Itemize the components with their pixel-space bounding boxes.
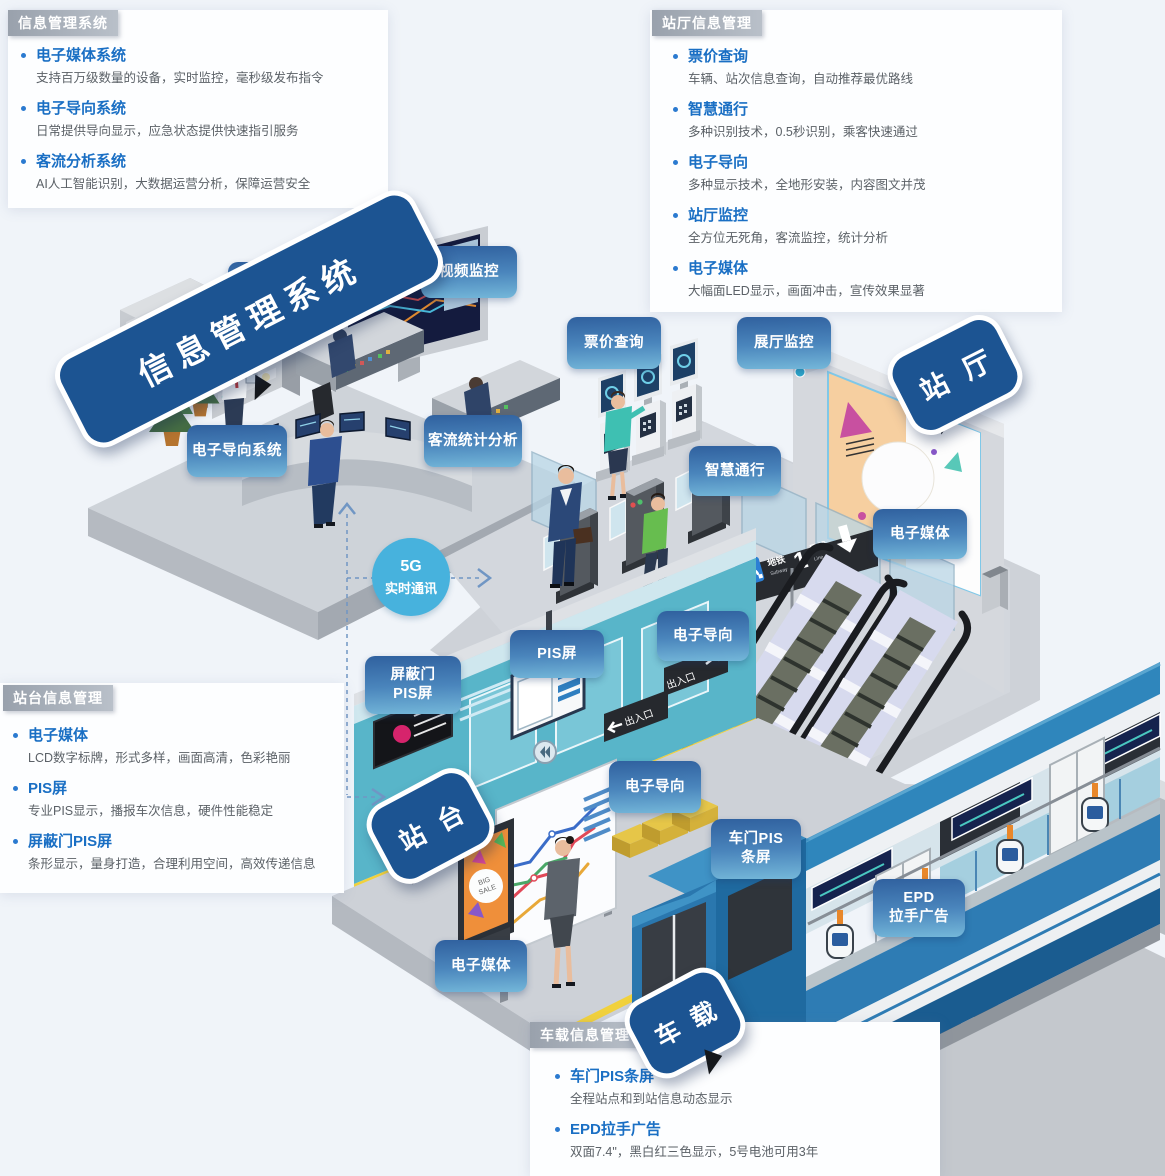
list-item: 客流分析系统 AI人工智能识别，大数据运营分析，保障运营安全 (21, 153, 382, 192)
list-item: PIS屏 专业PIS显示，播报车次信息，硬件性能稳定 (13, 780, 338, 819)
panel-info-system: 信息管理系统 电子媒体系统 支持百万级数量的设备，实时监控，毫秒级发布指令 电子… (8, 10, 388, 208)
bullet-icon (13, 839, 18, 844)
label-guide-system: 电子导向系统 (187, 425, 287, 477)
list-item: 屏蔽门PIS屏 条形显示，量身打造，合理利用空间，高效传递信息 (13, 833, 338, 872)
label-smart-pass: 智慧通行 (689, 446, 781, 496)
label-fare-query: 票价查询 (567, 317, 661, 369)
bullet-icon (13, 733, 18, 738)
list-item: 电子媒体系统 支持百万级数量的设备，实时监控，毫秒级发布指令 (21, 47, 382, 86)
label-guide-mid: 电子导向 (609, 761, 701, 813)
label-door-pis: 车门PIS条屏 (711, 819, 801, 879)
label-epd: EPD拉手广告 (873, 879, 965, 937)
bullet-icon (555, 1127, 560, 1132)
five-g-badge: 5G 实时通讯 (372, 538, 450, 616)
list-item: EPD拉手广告 双面7.4"，黑白红三色显示，5号电池可用3年 (555, 1121, 934, 1160)
bullet-icon (673, 107, 678, 112)
bullet-icon (673, 160, 678, 165)
panel-onboard-header: 车载信息管理 (530, 1022, 640, 1048)
list-item: 电子导向系统 日常提供导向显示，应急状态提供快速指引服务 (21, 100, 382, 139)
bullet-icon (21, 53, 26, 58)
bullet-icon (673, 266, 678, 271)
panel-platform-header: 站台信息管理 (3, 685, 113, 711)
panel-info-system-header: 信息管理系统 (8, 10, 118, 36)
list-item: 电子媒体 LCD数字标牌，形式多样，画面高清，色彩艳丽 (13, 727, 338, 766)
bullet-icon (673, 213, 678, 218)
label-psd-pis: 屏蔽门PIS屏 (365, 656, 461, 714)
list-item: 电子导向 多种显示技术，全地形安装，内容图文并茂 (673, 154, 1056, 193)
label-hall-monitor: 展厅监控 (737, 317, 831, 369)
list-item: 智慧通行 多种识别技术，0.5秒识别，乘客快速通过 (673, 101, 1056, 140)
list-item: 票价查询 车辆、站次信息查询，自动推荐最优路线 (673, 48, 1056, 87)
list-item: 车门PIS条屏 全程站点和到站信息动态显示 (555, 1068, 934, 1107)
panel-onboard: 车载信息管理 车门PIS条屏 全程站点和到站信息动态显示 EPD拉手广告 双面7… (530, 1022, 940, 1176)
label-guide-top: 电子导向 (657, 611, 749, 661)
panel-hall: 站厅信息管理 票价查询 车辆、站次信息查询，自动推荐最优路线 智慧通行 多种识别… (650, 10, 1062, 312)
panel-hall-header: 站厅信息管理 (652, 10, 762, 36)
list-item: 站厅监控 全方位无死角，客流监控，统计分析 (673, 207, 1056, 246)
infographic-root: 换乘 Transfer 地铁 Subway 1 号线 Line (0, 0, 1165, 1176)
label-platform-media: 电子媒体 (435, 940, 527, 992)
bullet-icon (21, 159, 26, 164)
list-item: 电子媒体 大幅面LED显示，画面冲击，宣传效果显著 (673, 260, 1056, 299)
bullet-icon (13, 786, 18, 791)
bullet-icon (673, 54, 678, 59)
panel-platform: 站台信息管理 电子媒体 LCD数字标牌，形式多样，画面高清，色彩艳丽 PIS屏 … (0, 683, 344, 893)
trash-bin (982, 566, 1008, 614)
bullet-icon (21, 106, 26, 111)
label-hall-media: 电子媒体 (873, 509, 967, 559)
bullet-icon (555, 1074, 560, 1079)
label-flow-stats: 客流统计分析 (424, 415, 522, 467)
label-pis-screen: PIS屏 (510, 630, 604, 678)
